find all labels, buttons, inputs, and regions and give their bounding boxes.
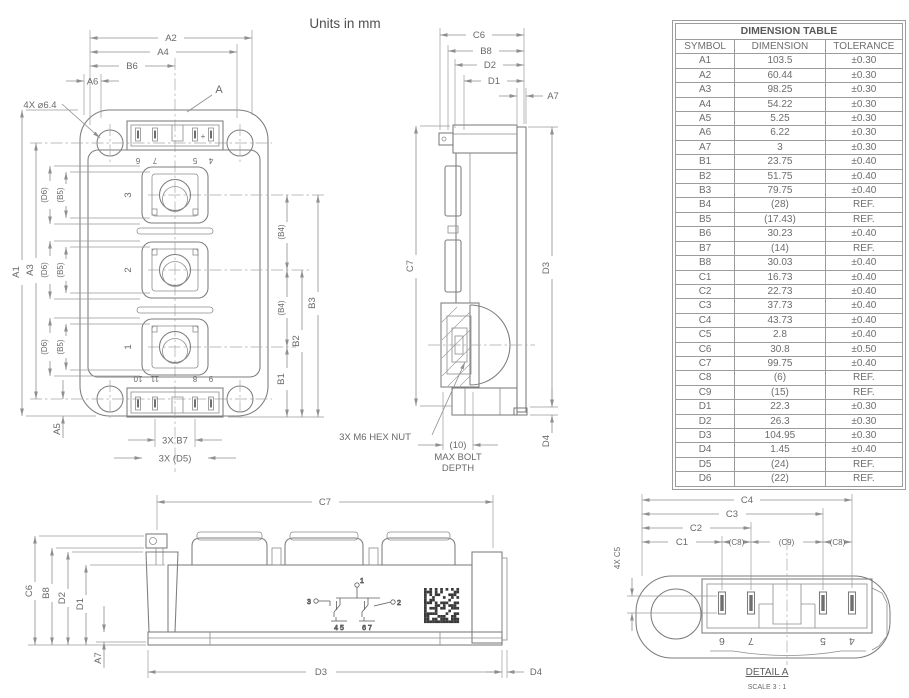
detail-pin-6: 6 [719, 635, 725, 647]
front-view: + 6 7 5 4 3 2 [11, 30, 326, 472]
schematic-terminal-2: 2 [397, 600, 401, 607]
terminal-number-1: 1 [123, 344, 134, 349]
front-pin-8: 8 [192, 374, 197, 383]
dim-label-c3: C3 [726, 509, 738, 520]
dim-label-c7-bottom: C7 [319, 497, 331, 508]
dim-label-c7: C7 [405, 260, 416, 272]
hex-nut-note: 3X M6 HEX NUT [339, 432, 411, 443]
dim-label-a5: A5 [52, 423, 63, 435]
dim-label-c6: C6 [473, 30, 485, 41]
detail-pin-5: 5 [820, 635, 826, 647]
dim-label-a2: A2 [165, 33, 177, 44]
schematic-terminal-3: 3 [307, 599, 311, 606]
drawing-sheet: Units in mm DIMENSION TABLE SYMBOL DIMEN… [0, 0, 909, 698]
dim-label-b1: B1 [276, 373, 287, 385]
terminal-number-2: 2 [123, 267, 134, 272]
dim-label-b4-ref: (B4) [277, 224, 286, 239]
terminal-number-3: 3 [123, 192, 134, 197]
dim-label-a7-bottom: A7 [93, 652, 104, 664]
dim-label-c4: C4 [741, 495, 753, 506]
front-pin-4: 4 [208, 156, 213, 165]
svg-text:(D6): (D6) [40, 339, 49, 355]
dim-label-d3-bottom: D3 [315, 667, 327, 678]
dim-label-d2: D2 [484, 60, 496, 71]
svg-text:(B5): (B5) [56, 187, 65, 202]
holes-note: 4X ⌀6.4 [23, 100, 56, 111]
dim-label-b8-bottom: B8 [41, 587, 52, 599]
dim-label-d3: D3 [541, 262, 552, 274]
dim-label-a3: A3 [25, 264, 36, 276]
dim-label-a1: A1 [11, 266, 22, 278]
polarity-plus-mark: + [201, 132, 206, 141]
detail-a-scale: SCALE 3 : 1 [748, 684, 787, 691]
bolt-depth-note-2: DEPTH [442, 463, 474, 474]
schematic-gates-left: 4 5 [334, 625, 344, 632]
dim-label-d4: D4 [541, 435, 552, 447]
dim-label-a6: A6 [87, 77, 99, 88]
dim-label-a7: A7 [547, 91, 559, 102]
dim-label-b7: 3X B7 [162, 436, 188, 447]
svg-text:(B5): (B5) [56, 262, 65, 277]
dim-label-d5: 3X (D5) [159, 454, 192, 465]
front-pin-11: 11 [150, 374, 159, 383]
dim-label-b8: B8 [480, 46, 492, 57]
svg-text:(D6): (D6) [40, 262, 49, 278]
detail-a-callout: A [215, 84, 223, 96]
dim-label-c8-ref: (C8) [729, 538, 745, 547]
detail-a-view: 6 7 5 4 C4 C3 C2 C1 (C8) (C9) (C8) [613, 494, 890, 691]
detail-a-caption: DETAIL A [746, 667, 789, 678]
front-top-pins: + [136, 128, 214, 141]
bolt-depth-value: (10) [450, 440, 467, 451]
dim-label-b2: B2 [291, 335, 302, 347]
detail-pin-7: 7 [748, 635, 754, 647]
dim-label-d4-bottom: D4 [530, 667, 542, 678]
side-view: C6 B8 D2 D1 A7 C7 D3 D4 3X M6 HEX NUT [339, 28, 559, 474]
dim-label-a4: A4 [157, 47, 169, 58]
dim-label-d1: D1 [488, 76, 500, 87]
drawing-canvas: + 6 7 5 4 3 2 [0, 0, 909, 698]
dim-label-c5: 4X C5 [613, 546, 622, 569]
front-pin-10: 10 [133, 374, 142, 383]
circuit-schematic: 1 3 2 4 5 6 7 [307, 578, 401, 632]
dim-label-c9-ref: (C9) [779, 538, 795, 547]
dim-label-b4-ref: (B4) [277, 300, 286, 315]
svg-text:(B5): (B5) [56, 339, 65, 354]
svg-text:(D6): (D6) [40, 187, 49, 203]
dim-label-d1-bottom: D1 [75, 598, 86, 610]
dim-label-c8-ref: (C8) [830, 538, 846, 547]
bolt-depth-note-1: MAX BOLT [434, 452, 482, 463]
front-pin-7: 7 [152, 156, 157, 165]
front-pin-6: 6 [135, 156, 140, 165]
front-pin-5: 5 [192, 156, 197, 165]
datamatrix-code [424, 588, 459, 623]
dim-label-c1: C1 [676, 537, 688, 548]
dim-label-c2: C2 [690, 523, 702, 534]
dim-label-d2-bottom: D2 [57, 592, 68, 604]
dim-label-c6-bottom: C6 [24, 585, 35, 597]
dim-label-b3: B3 [307, 297, 318, 309]
bottom-elevation-view: 1 3 2 4 5 6 7 C7 C6 B8 D2 D1 [24, 495, 542, 678]
dim-label-b6: B6 [126, 61, 138, 72]
schematic-terminal-1: 1 [360, 578, 364, 585]
hex-nut-section [428, 303, 535, 387]
schematic-gates-right: 6 7 [362, 625, 372, 632]
detail-pin-4: 4 [849, 635, 855, 647]
front-pin-9: 9 [208, 374, 213, 383]
